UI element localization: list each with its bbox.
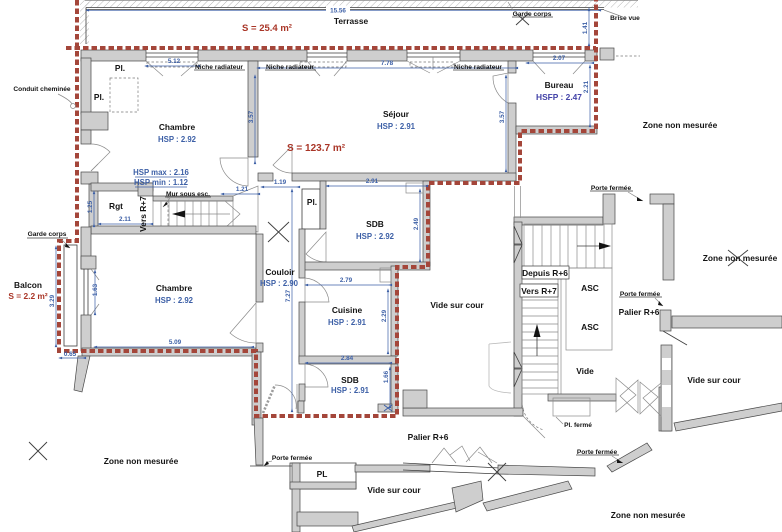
svg-text:ASC: ASC (581, 283, 599, 293)
svg-text:Vers R+7: Vers R+7 (138, 196, 148, 232)
svg-text:Couloir: Couloir (265, 267, 295, 277)
svg-text:1.63: 1.63 (92, 283, 99, 296)
svg-text:2.21: 2.21 (583, 80, 590, 93)
svg-text:Porte fermée: Porte fermée (272, 455, 313, 462)
svg-text:Pl.: Pl. (94, 92, 104, 102)
svg-text:1.25: 1.25 (87, 200, 94, 213)
svg-text:Séjour: Séjour (383, 109, 410, 119)
svg-text:2.29: 2.29 (381, 309, 388, 322)
svg-text:Garde corps: Garde corps (28, 231, 67, 238)
svg-text:HSP : 2.91: HSP : 2.91 (377, 122, 416, 131)
svg-text:2.11: 2.11 (119, 216, 131, 223)
svg-text:Pl.: Pl. (307, 197, 317, 207)
svg-text:Vide sur cour: Vide sur cour (687, 375, 741, 385)
svg-text:Vers R+7: Vers R+7 (521, 286, 557, 296)
svg-text:7.27: 7.27 (285, 289, 292, 302)
svg-text:S = 123.7 m²: S = 123.7 m² (287, 143, 346, 154)
svg-text:Zone non mesurée: Zone non mesurée (104, 456, 179, 466)
svg-text:HSP : 2.90: HSP : 2.90 (260, 279, 299, 288)
svg-text:2.79: 2.79 (340, 277, 353, 284)
svg-text:Balcon: Balcon (14, 280, 42, 290)
svg-text:HSP : 2.92: HSP : 2.92 (158, 135, 197, 144)
svg-text:S = 25.4 m²: S = 25.4 m² (242, 23, 292, 34)
svg-text:7.78: 7.78 (381, 60, 394, 67)
svg-text:Conduit cheminée: Conduit cheminée (13, 86, 70, 93)
svg-text:15.56: 15.56 (330, 7, 346, 14)
svg-text:Zone non mesurée: Zone non mesurée (703, 253, 778, 263)
svg-text:2.07: 2.07 (553, 55, 566, 62)
svg-text:3.57: 3.57 (248, 110, 255, 123)
svg-text:HSP : 2.91: HSP : 2.91 (328, 318, 367, 327)
svg-text:Terrasse: Terrasse (334, 16, 369, 26)
svg-text:Bureau: Bureau (545, 80, 574, 90)
svg-text:3.29: 3.29 (49, 294, 56, 307)
svg-text:HSP : 2.92: HSP : 2.92 (356, 232, 395, 241)
svg-text:3.57: 3.57 (499, 110, 506, 123)
svg-text:PL: PL (317, 469, 328, 479)
svg-text:Zone non mesurée: Zone non mesurée (643, 120, 718, 130)
svg-text:Rgt: Rgt (109, 201, 123, 211)
svg-text:1.66: 1.66 (383, 370, 390, 383)
svg-text:2.49: 2.49 (413, 217, 420, 230)
svg-text:Chambre: Chambre (159, 122, 196, 132)
svg-text:Vide sur cour: Vide sur cour (367, 485, 421, 495)
svg-text:0.65: 0.65 (64, 351, 77, 358)
svg-text:HSP min : 1.12: HSP min : 1.12 (134, 178, 189, 187)
svg-text:Zone non mesurée: Zone non mesurée (611, 510, 686, 520)
svg-text:5.09: 5.09 (169, 339, 182, 346)
svg-text:Brise vue: Brise vue (610, 15, 640, 22)
svg-text:SDB: SDB (341, 375, 359, 385)
svg-text:Vide: Vide (576, 366, 594, 376)
svg-text:Pl. fermé: Pl. fermé (564, 422, 592, 429)
svg-text:Chambre: Chambre (156, 283, 193, 293)
svg-text:HSFP : 2.47: HSFP : 2.47 (536, 92, 582, 102)
svg-text:Pl.: Pl. (115, 63, 125, 73)
svg-text:1.41: 1.41 (582, 21, 589, 34)
svg-text:2.84: 2.84 (341, 355, 354, 362)
svg-text:Cuisine: Cuisine (332, 305, 363, 315)
svg-text:S = 2.2 m²: S = 2.2 m² (8, 291, 48, 301)
svg-text:Vide sur cour: Vide sur cour (430, 300, 484, 310)
svg-text:Palier R+6: Palier R+6 (619, 307, 660, 317)
svg-text:Depuis R+6: Depuis R+6 (522, 268, 568, 278)
svg-text:ASC: ASC (581, 322, 599, 332)
svg-text:5.12: 5.12 (168, 58, 181, 65)
svg-text:2.91: 2.91 (366, 178, 379, 185)
svg-text:1.21: 1.21 (236, 186, 249, 193)
svg-text:SDB: SDB (366, 219, 384, 229)
svg-text:HSP : 2.91: HSP : 2.91 (331, 386, 370, 395)
svg-text:1.19: 1.19 (274, 179, 287, 186)
svg-text:HSP max : 2.16: HSP max : 2.16 (133, 168, 189, 177)
svg-text:Palier R+6: Palier R+6 (408, 432, 449, 442)
svg-text:HSP : 2.92: HSP : 2.92 (155, 296, 194, 305)
